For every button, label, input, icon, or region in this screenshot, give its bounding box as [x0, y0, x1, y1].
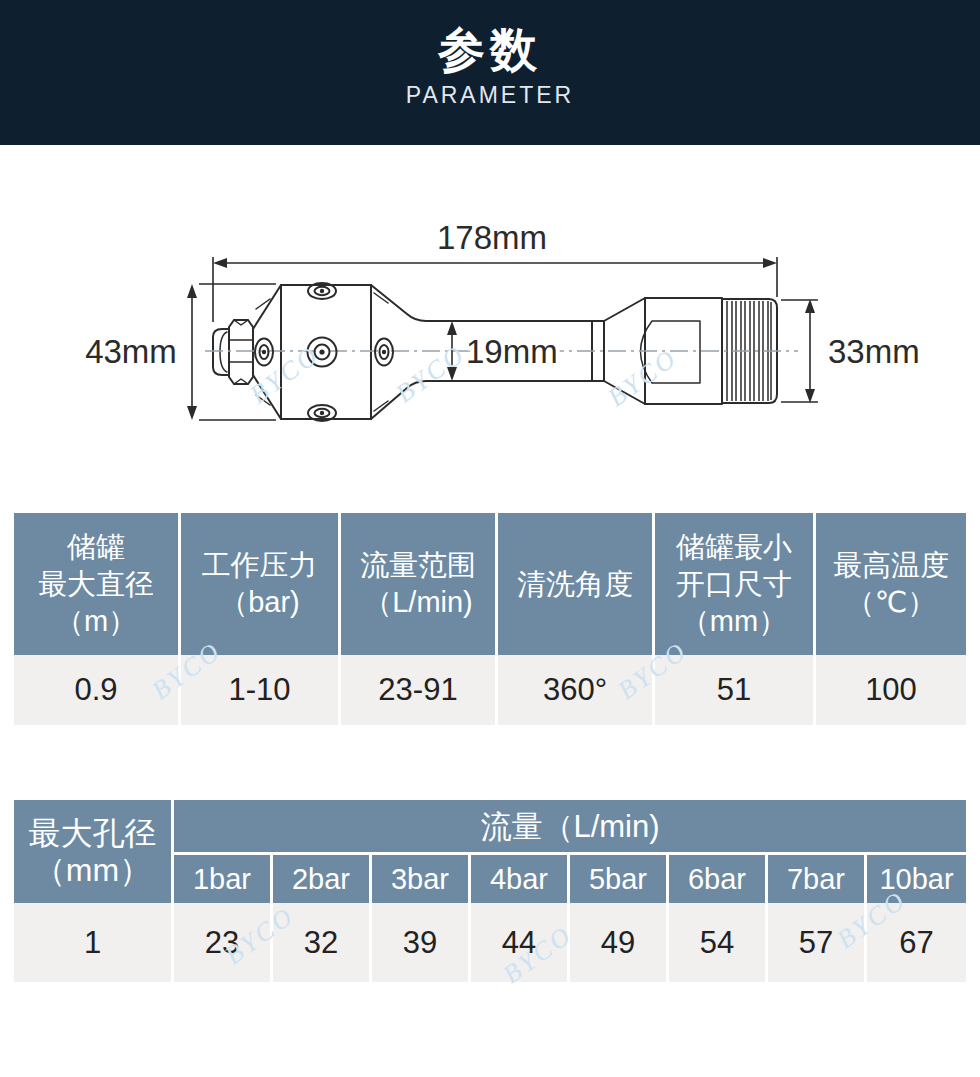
col-header-1bar: 1bar	[174, 855, 270, 903]
value-flow-6bar: 54	[669, 903, 765, 982]
dim-neck-label: 19mm	[466, 333, 558, 370]
col-header-flow-range: 流量范围 （L/min)	[341, 513, 495, 655]
page-title: 参数	[0, 0, 980, 76]
col-header-6bar: 6bar	[669, 855, 765, 903]
nozzle-technical-drawing: 178mm 43mm 19mm 33mm	[0, 150, 980, 480]
parameter-table: 储罐 最大直径 （m） 工作压力 （bar) 流量范围 （L/min) 清洗角度…	[14, 513, 966, 725]
value-flow-2bar: 32	[273, 903, 369, 982]
page-subtitle: PARAMETER	[0, 82, 980, 109]
col-header-min-opening: 储罐最小 开口尺寸 （mm）	[655, 513, 813, 655]
col-header-2bar: 2bar	[273, 855, 369, 903]
dimension-thread-diameter: 33mm	[781, 299, 920, 403]
value-flow-3bar: 39	[372, 903, 468, 982]
value-flow-5bar: 49	[570, 903, 666, 982]
row-header-max-orifice: 最大孔径 （mm）	[14, 800, 171, 903]
col-header-3bar: 3bar	[372, 855, 468, 903]
value-flow-10bar: 67	[867, 903, 966, 982]
value-tank-diameter: 0.9	[14, 655, 178, 725]
dimension-head-diameter: 43mm	[85, 284, 276, 420]
value-working-pressure: 1-10	[181, 655, 338, 725]
col-header-7bar: 7bar	[768, 855, 864, 903]
col-header-max-temperature: 最高温度 （℃）	[816, 513, 966, 655]
value-flow-7bar: 57	[768, 903, 864, 982]
title-band: 参数 PARAMETER	[0, 0, 980, 145]
col-header-5bar: 5bar	[570, 855, 666, 903]
flow-table: 最大孔径 （mm） 流量（L/min) 1bar 2bar 3bar 4bar …	[14, 800, 966, 982]
col-header-cleaning-angle: 清洗角度	[498, 513, 652, 655]
col-header-10bar: 10bar	[867, 855, 966, 903]
col-header-4bar: 4bar	[471, 855, 567, 903]
value-flow-range: 23-91	[341, 655, 495, 725]
value-max-temperature: 100	[816, 655, 966, 725]
dimension-total-length: 178mm	[213, 219, 777, 322]
col-header-tank-diameter: 储罐 最大直径 （m）	[14, 513, 178, 655]
value-flow-1bar: 23	[174, 903, 270, 982]
value-cleaning-angle: 360°	[498, 655, 652, 725]
dim-thread-label: 33mm	[828, 333, 920, 370]
group-header-flow: 流量（L/min)	[174, 800, 966, 855]
nozzle-orifices	[255, 283, 393, 421]
value-max-orifice: 1	[14, 903, 171, 982]
dim-total-label: 178mm	[437, 219, 547, 256]
dim-head-label: 43mm	[85, 333, 177, 370]
value-min-opening: 51	[655, 655, 813, 725]
col-header-working-pressure: 工作压力 （bar)	[181, 513, 338, 655]
value-flow-4bar: 44	[471, 903, 567, 982]
